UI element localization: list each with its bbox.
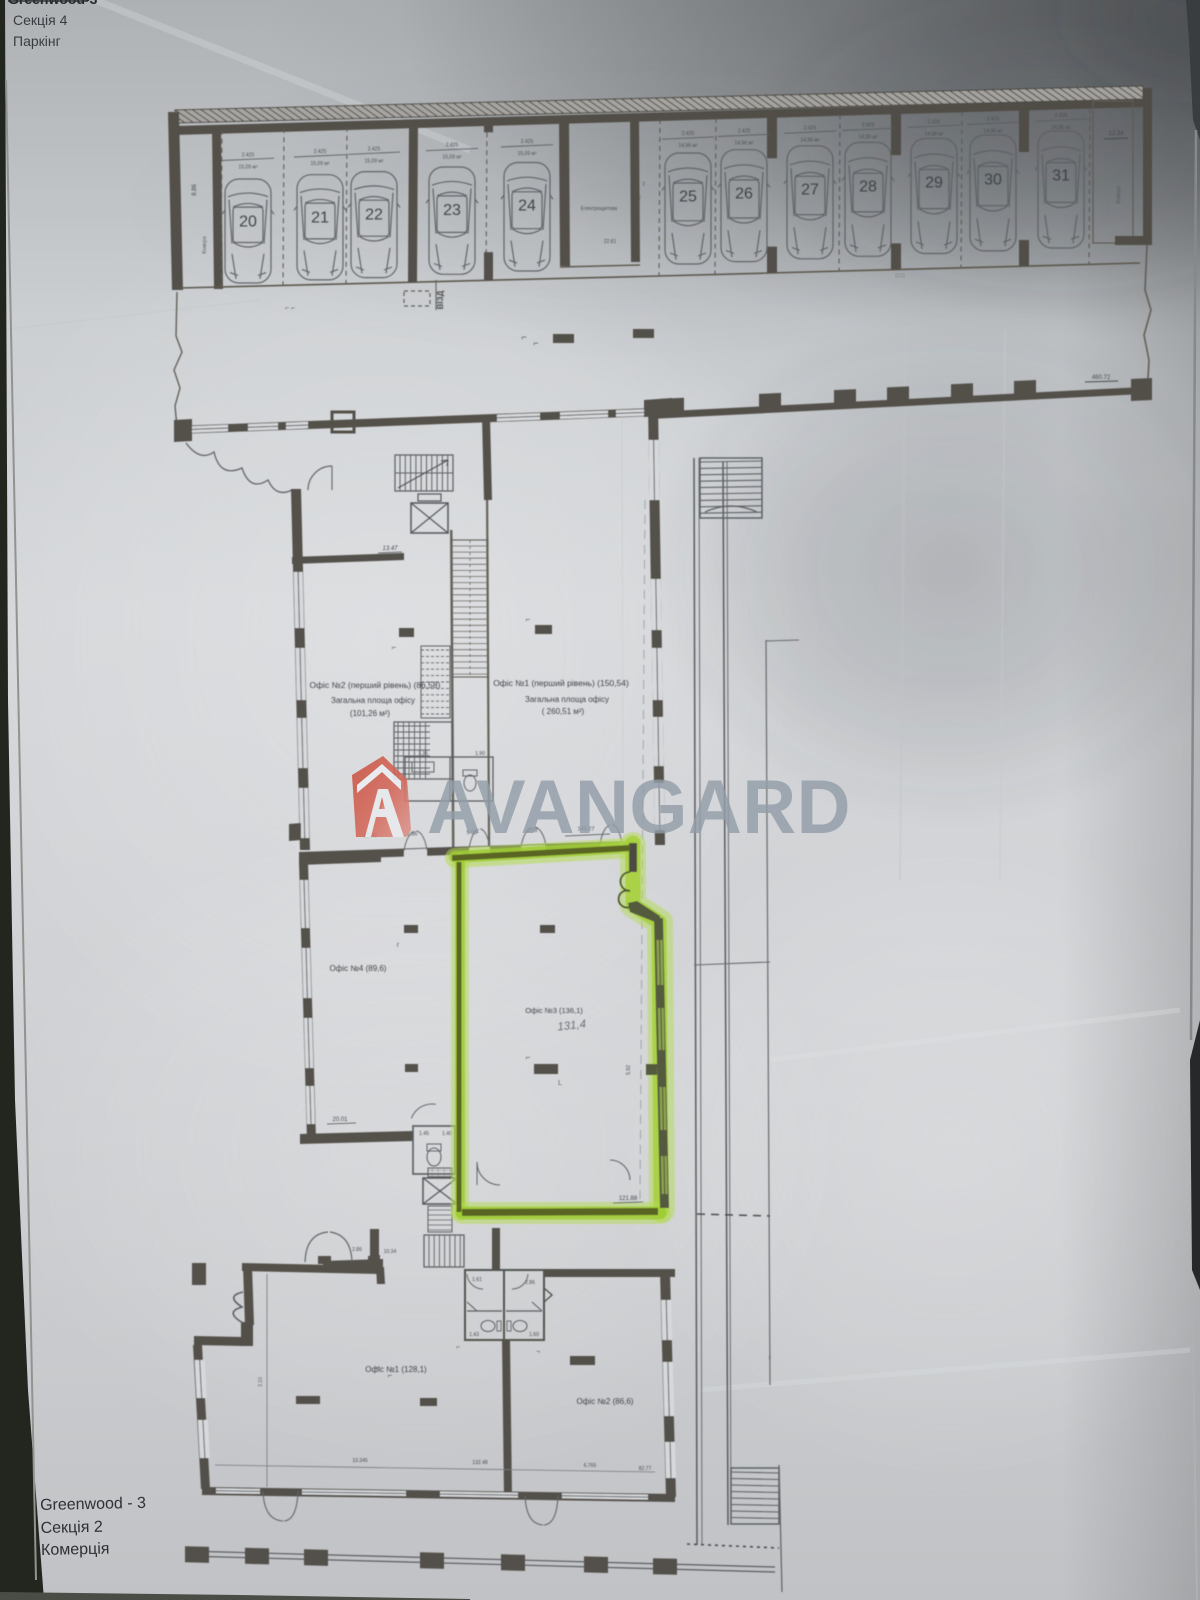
svg-text:20.01: 20.01 [332,1117,348,1123]
svg-text:29: 29 [925,175,943,192]
svg-text:14,96 м²: 14,96 м² [858,135,877,141]
svg-text:Офіс №3 (136,1): Офіс №3 (136,1) [525,1006,583,1015]
svg-text:⌐: ⌐ [533,338,538,348]
svg-text:5.92: 5.92 [626,1065,632,1075]
svg-text:15,09 м²: 15,09 м² [442,155,461,161]
svg-text:⌐: ⌐ [521,332,526,342]
svg-text:Секція 2: Секція 2 [40,1519,103,1537]
svg-text:⌐: ⌐ [388,1371,393,1380]
svg-text:26: 26 [735,185,753,202]
svg-text:27: 27 [801,182,819,199]
svg-text:22: 22 [365,206,383,223]
svg-text:1.36: 1.36 [418,751,428,757]
svg-text:2.425: 2.425 [368,146,381,152]
svg-text:10.345: 10.345 [352,1458,368,1464]
svg-text:14,96 м²: 14,96 м² [1051,125,1070,131]
svg-text:Секція 4: Секція 4 [13,12,68,28]
svg-text:Офіс №4 (89,6): Офіс №4 (89,6) [330,964,387,973]
svg-text:(101,26 м²): (101,26 м²) [350,709,391,718]
svg-text:24: 24 [518,198,536,215]
svg-text:⌐ ⌐: ⌐ ⌐ [285,305,295,312]
svg-text:14,96 м²: 14,96 м² [983,129,1002,135]
svg-text:2.86: 2.86 [352,1247,362,1253]
svg-text:¬: ¬ [536,1349,540,1356]
svg-text:Комерція: Комерція [41,1541,110,1559]
svg-text:2.425: 2.425 [242,153,255,159]
svg-text:г: г [643,181,646,188]
svg-text:Офіс №2 (перший рівень) (86,58: Офіс №2 (перший рівень) (86,58) [310,680,441,690]
svg-text:г: г [397,942,400,949]
svg-text:14,96 м²: 14,96 м² [924,131,943,137]
svg-text:Електрощитова: Електрощитова [581,206,618,212]
svg-text:2.425: 2.425 [314,149,327,155]
svg-text:⌐: ⌐ [392,643,397,652]
svg-text:Комора: Комора [202,236,208,254]
svg-text:6.765: 6.765 [584,1463,597,1469]
svg-text:Комора: Комора [1116,186,1122,204]
svg-text:Офіс №1 (128,1): Офіс №1 (128,1) [365,1365,427,1374]
svg-text:1.60: 1.60 [529,1332,539,1338]
svg-text:12.34: 12.34 [1108,131,1124,137]
svg-text:Офіс №2 (86,6): Офіс №2 (86,6) [577,1397,634,1406]
svg-text:2.425: 2.425 [682,131,695,137]
svg-text:2.425: 2.425 [804,125,817,131]
svg-text:2.425: 2.425 [928,119,941,125]
svg-text:28: 28 [859,178,877,195]
svg-text:⌐: ⌐ [456,1344,460,1351]
svg-text:2.425: 2.425 [446,143,459,149]
svg-text:г: г [639,195,642,202]
svg-text:132.48: 132.48 [472,1460,488,1466]
svg-text:25: 25 [679,189,697,206]
svg-text:23: 23 [443,202,461,219]
svg-text:2.425: 2.425 [987,117,1000,123]
svg-text:3.10: 3.10 [258,1377,264,1387]
svg-text:14,96 м²: 14,96 м² [800,137,819,143]
svg-text:8.86: 8.86 [192,184,198,196]
svg-text:14,96 м²: 14,96 м² [734,141,753,147]
svg-text:15,09 м²: 15,09 м² [364,158,383,164]
svg-text:□ □: □ □ [896,273,905,279]
svg-text:1.90: 1.90 [475,751,485,757]
svg-text:2.86: 2.86 [525,1280,535,1286]
svg-text:20: 20 [239,214,257,231]
svg-text:Офіс №1 (перший рівень) (150,5: Офіс №1 (перший рівень) (150,54) [493,678,629,688]
svg-text:15,09 м²: 15,09 м² [310,161,329,167]
svg-text:10.34: 10.34 [384,1249,397,1255]
svg-text:31: 31 [1052,168,1070,185]
svg-text:1.61: 1.61 [472,1277,482,1283]
svg-text:г: г [769,1355,772,1362]
svg-text:⌐: ⌐ [526,1053,531,1062]
svg-text:1.40: 1.40 [442,1131,452,1137]
svg-text:Загальна площа офісу: Загальна площа офісу [331,696,415,705]
svg-text:15,09 м²: 15,09 м² [238,165,257,171]
svg-text:15,09 м²: 15,09 м² [517,151,536,157]
svg-text:82.77: 82.77 [639,1466,652,1472]
svg-text:2.425: 2.425 [1055,113,1068,119]
svg-text:1.43: 1.43 [469,1332,479,1338]
svg-text:L: L [558,1080,562,1087]
svg-text:2.425: 2.425 [738,129,751,135]
svg-text:22.81: 22.81 [604,239,617,245]
svg-text:⌐: ⌐ [376,1363,381,1372]
svg-text:1.45: 1.45 [419,1131,429,1137]
svg-text:Загальна площа офісу: Загальна площа офісу [525,695,609,704]
svg-text:2.425: 2.425 [862,123,875,129]
svg-text:14,96 м²: 14,96 м² [678,143,697,149]
svg-text:Паркінг: Паркінг [13,33,61,49]
svg-text:121.88: 121.88 [619,1196,638,1202]
svg-text:AVANGARD: AVANGARD [427,765,851,850]
svg-text:460.72: 460.72 [1092,375,1111,381]
svg-text:( 260,51 м²): ( 260,51 м²) [542,707,585,716]
svg-text:Greenwood - 3: Greenwood - 3 [40,1495,146,1514]
svg-text:13.47: 13.47 [382,546,398,552]
svg-text:2.425: 2.425 [521,139,534,145]
svg-text:30: 30 [984,171,1002,188]
svg-text:⌐: ⌐ [526,615,531,624]
svg-text:ВЇЗД: ВЇЗД [436,290,445,309]
svg-text:21: 21 [311,209,329,226]
